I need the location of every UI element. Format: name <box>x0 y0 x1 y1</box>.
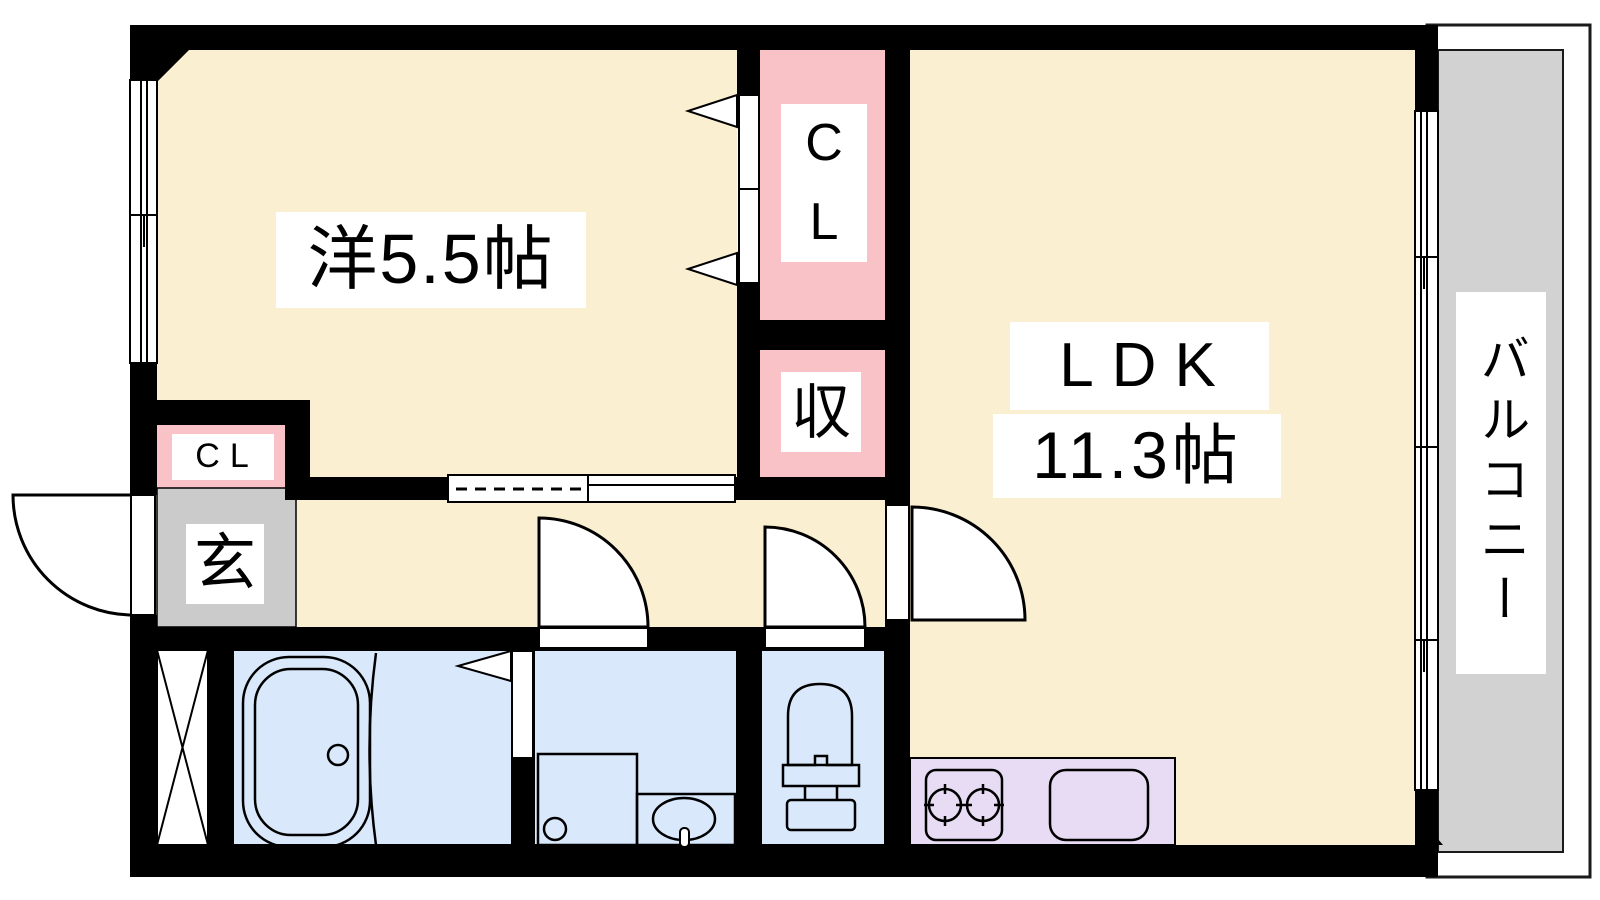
wall-notch-horizontal <box>130 400 310 425</box>
storage-label: 収 <box>781 372 861 452</box>
washroom-floor <box>534 650 737 845</box>
balcony-label: バルコニー <box>1456 292 1546 674</box>
wall-ldk-left-lower <box>885 620 910 845</box>
wall-washroom-toilet <box>737 650 761 845</box>
window-balcony <box>1415 111 1438 790</box>
entrance-label: 玄 <box>186 524 264 604</box>
entry-door <box>13 495 155 615</box>
wall-closet-left-upper <box>737 50 760 95</box>
wall-closet-divider <box>737 320 910 350</box>
western-room-floor-lower <box>305 400 737 479</box>
pipe-shaft <box>157 650 208 845</box>
closet-entry-label: CL <box>172 434 274 480</box>
closet-main-label-l: L <box>781 182 867 262</box>
ldk-size-label: 11.3帖 <box>993 414 1281 498</box>
wall-left-mid <box>130 363 157 495</box>
toilet-floor <box>761 650 885 845</box>
floorplan: 洋5.5帖 LDK 11.3帖 バルコニー C L 収 CL 玄 <box>0 0 1600 900</box>
wall-bottom <box>130 845 1438 877</box>
wall-top <box>130 25 1438 50</box>
wall-left-lower <box>130 615 157 877</box>
wall-bath-divider-lower <box>512 758 534 845</box>
sliding-door-western <box>448 475 735 502</box>
window-west <box>130 80 157 363</box>
wall-closet-left-lower <box>737 283 760 479</box>
wall-right-top <box>1415 25 1438 111</box>
western-room-label: 洋5.5帖 <box>276 212 586 308</box>
wall-shaft-right <box>208 650 233 845</box>
closet-main-label-c: C <box>781 104 867 182</box>
wall-ldk-left-upper <box>885 25 910 505</box>
wall-left-upper <box>130 50 157 80</box>
ldk-label: LDK <box>1010 322 1269 410</box>
